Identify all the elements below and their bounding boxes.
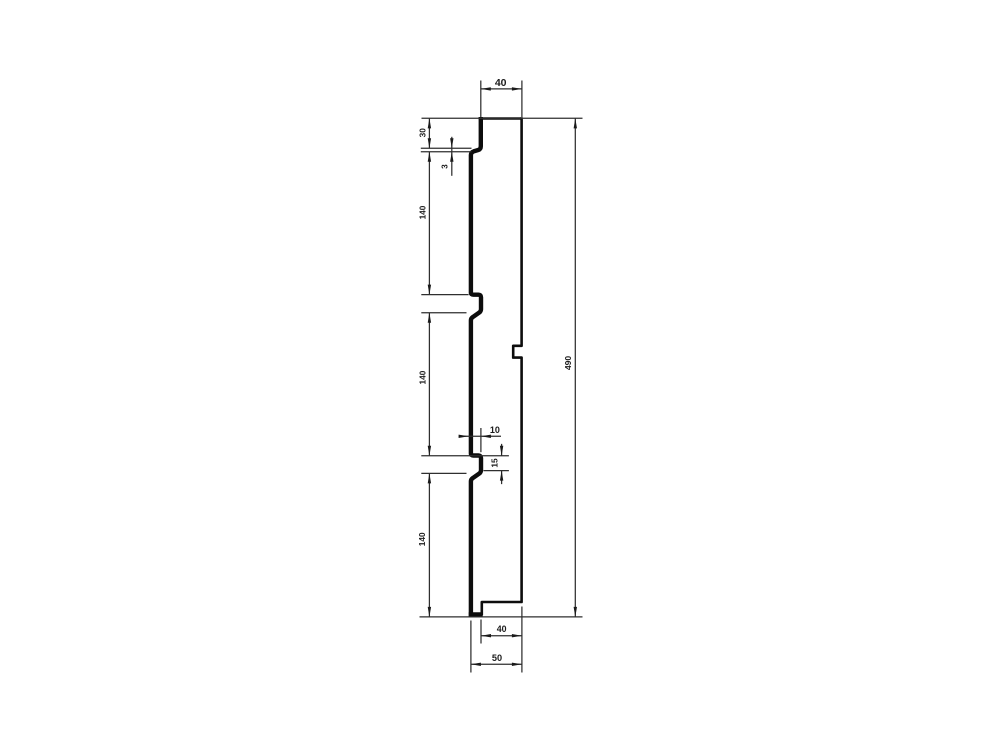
svg-text:50: 50 [492, 653, 502, 663]
svg-text:40: 40 [497, 624, 507, 634]
svg-text:140: 140 [417, 370, 427, 384]
svg-text:15: 15 [490, 458, 500, 468]
svg-text:10: 10 [490, 425, 500, 435]
svg-text:490: 490 [563, 356, 573, 371]
svg-text:140: 140 [418, 205, 428, 219]
svg-text:140: 140 [417, 532, 427, 546]
svg-text:30: 30 [417, 128, 427, 138]
svg-text:3: 3 [440, 164, 450, 169]
svg-text:40: 40 [495, 77, 507, 89]
